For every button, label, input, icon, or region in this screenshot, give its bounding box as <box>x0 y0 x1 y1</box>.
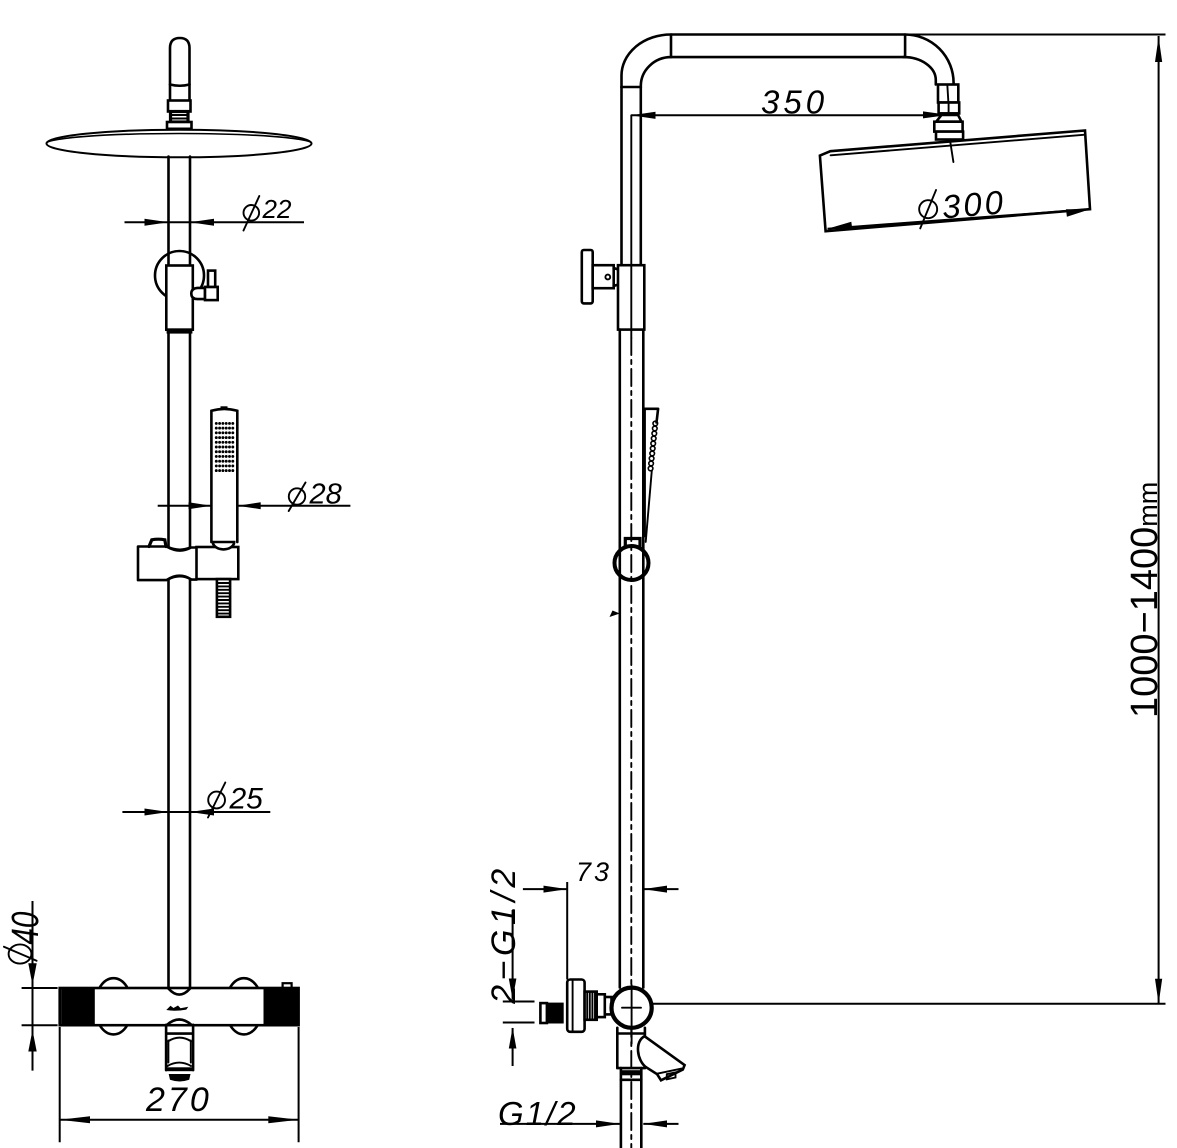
svg-text:28: 28 <box>309 479 342 511</box>
svg-text:25: 25 <box>229 783 264 816</box>
svg-text:270: 270 <box>145 1081 212 1119</box>
svg-text:2−G1/2: 2−G1/2 <box>485 864 523 1004</box>
svg-text:73: 73 <box>576 857 612 887</box>
svg-text:40: 40 <box>5 912 47 945</box>
svg-text:22: 22 <box>262 194 292 224</box>
svg-text:350: 350 <box>761 84 828 121</box>
svg-text:300: 300 <box>940 183 1007 225</box>
svg-text:G1/2: G1/2 <box>498 1095 578 1132</box>
